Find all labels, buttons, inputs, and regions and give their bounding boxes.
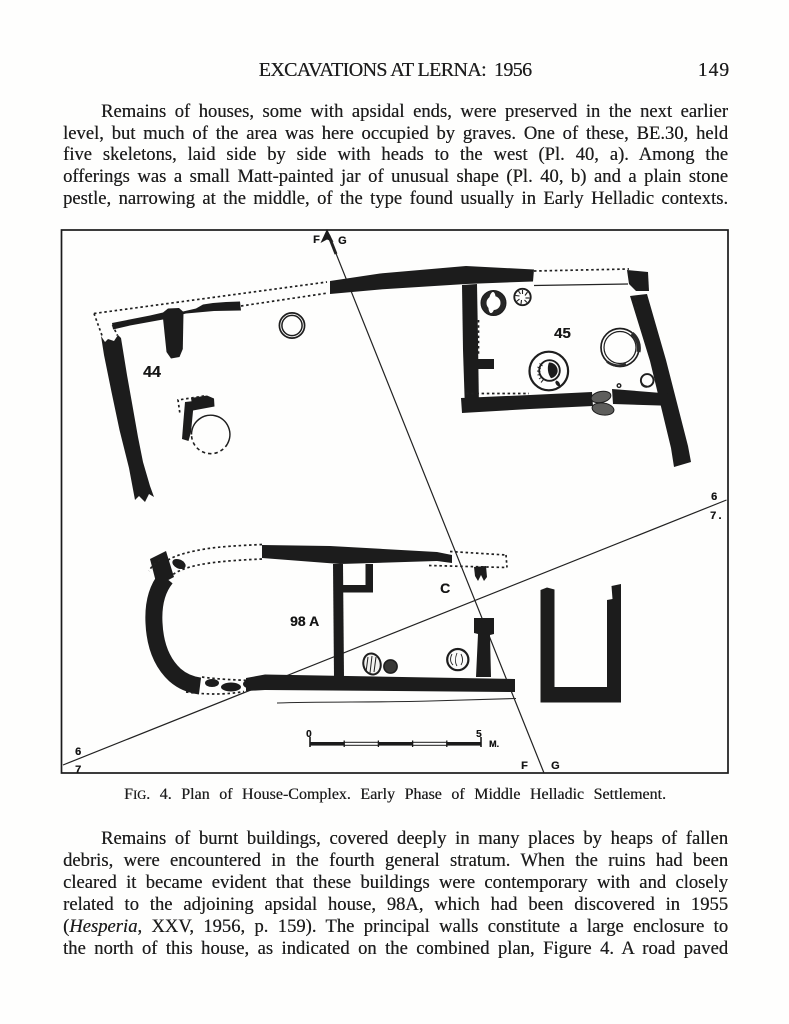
svg-text:0: 0 xyxy=(306,729,312,740)
svg-text:7: 7 xyxy=(75,764,81,776)
svg-text:5: 5 xyxy=(476,729,482,740)
svg-text:C: C xyxy=(440,580,450,596)
svg-text:M.: M. xyxy=(489,739,499,749)
svg-text:7 .: 7 . xyxy=(710,510,721,522)
svg-text:F: F xyxy=(521,760,528,772)
svg-text:6: 6 xyxy=(711,491,717,503)
svg-text:F: F xyxy=(313,234,320,246)
svg-text:98 A: 98 A xyxy=(290,613,319,629)
svg-text:G: G xyxy=(551,760,560,772)
svg-text:6: 6 xyxy=(75,746,81,758)
svg-text:G: G xyxy=(338,235,347,247)
svg-text:45: 45 xyxy=(554,325,571,342)
svg-text:44: 44 xyxy=(143,364,161,381)
